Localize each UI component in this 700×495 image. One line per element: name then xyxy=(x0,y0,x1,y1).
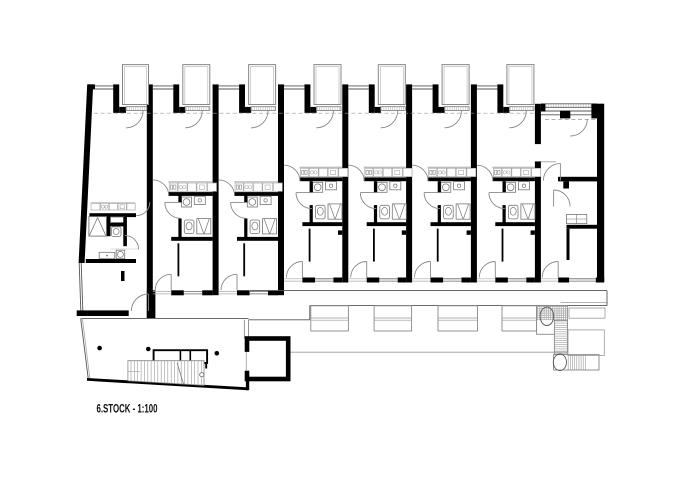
svg-text:6.STOCK - 1:100: 6.STOCK - 1:100 xyxy=(97,402,158,416)
